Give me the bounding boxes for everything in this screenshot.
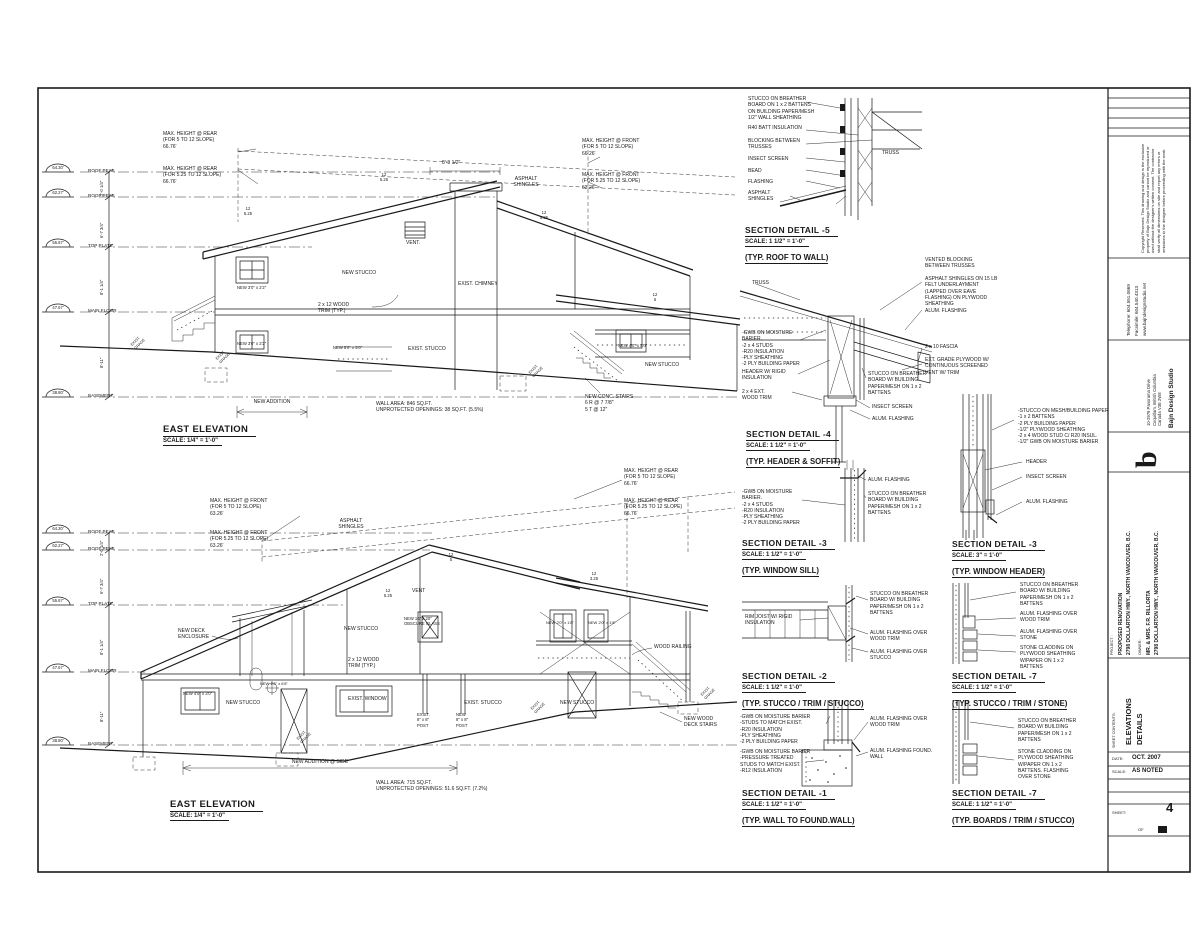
detail-scale-text: SCALE: 1 1/2" = 1'-0" [742,684,806,693]
detail-title-text: SECTION DETAIL -3 [952,539,1045,551]
detail-subtitle-text: (TYP. BOARDS / TRIM / STUCCO) [952,816,1074,827]
firm-name: Bajn Design Studio [1168,368,1175,428]
detail-subtitle-text: (TYP. WINDOW SILL) [742,566,819,577]
detail-scale-text: SCALE: 1 1/2" = 1'-0" [742,551,806,560]
fax-text: Facsimile: 604.540.4313 [1134,286,1139,336]
callout: STONE CLADDING ON PLYWOOD SHEATHING W/PA… [1018,749,1073,780]
detail-2-title: SECTION DETAIL -2 SCALE: 1 1/2" = 1'-0" … [742,666,864,711]
firm-address: 10-2979 Panorama Drive Coquitlam, Britis… [1146,356,1163,426]
sheet-contents-label: SHEET CONTENTS: [1112,712,1116,748]
detail-3-header-title: SECTION DETAIL -3 SCALE: 3" = 1'-0" (TYP… [952,534,1045,579]
detail-subtitle-text: (TYP. WALL TO FOUND.WALL) [742,816,855,827]
owner-text: MR. & MRS. F.R. RILLORTA 2798 DOLLARTON … [1146,483,1161,655]
sheet-total-block [1158,826,1167,833]
detail-scale-text: SCALE: 1 1/2" = 1'-0" [745,238,809,247]
date-value: OCT. 2007 [1132,755,1161,761]
elevation-2-title: EAST ELEVATION SCALE: 1/4" = 1'-0" [170,794,263,821]
elevation-title-text: EAST ELEVATION [163,424,256,437]
detail-subtitle-text: (TYP. ROOF TO WALL) [745,253,828,264]
detail-title-text: SECTION DETAIL -4 [746,429,839,441]
drawing-sheet: MAX. HEIGHT @ REAR (FOR 5 TO 12 SLOPE) 6… [0,0,1200,927]
detail-scale-text: SCALE: 1 1/2" = 1'-0" [952,801,1016,810]
detail-subtitle-text: (TYP. HEADER & SOFFIT) [746,457,840,468]
website-text: www.bajndesignstudio.net [1142,283,1147,336]
sheet-number: 4 [1166,800,1173,815]
callout: STUCCO ON BREATHER BOARD W/ BUILDING PAP… [1018,718,1076,743]
detail-subtitle-text: (TYP. WINDOW HEADER) [952,567,1045,578]
detail-title-text: SECTION DETAIL -7 [952,788,1045,800]
detail-1-title: SECTION DETAIL -1 SCALE: 1 1/2" = 1'-0" … [742,783,855,828]
firm-logo: b [1130,451,1164,468]
elevation-scale-text: SCALE: 1/4" = 1'-0" [170,812,229,821]
detail-title-text: SECTION DETAIL -7 [952,671,1045,683]
detail-7-stone-title: SECTION DETAIL -7 SCALE: 1 1/2" = 1'-0" … [952,666,1067,711]
project-label: PROJECT : [1110,635,1114,655]
detail-subtitle-text: (TYP. STUCCO / TRIM / STUCCO) [742,699,864,710]
detail-title-text: SECTION DETAIL -2 [742,671,835,683]
elevation-scale-text: SCALE: 1/4" = 1'-0" [163,437,222,446]
sheet-contents-text: ELEVATIONS DETAILS [1124,660,1145,745]
detail-7-boards-title: SECTION DETAIL -7 SCALE: 1 1/2" = 1'-0" … [952,783,1074,828]
detail-subtitle-text: (TYP. STUCCO / TRIM / STONE) [952,699,1067,710]
owner-label: OWNER: [1138,639,1142,655]
detail-3-sill-title: SECTION DETAIL -3 SCALE: 1 1/2" = 1'-0" … [742,533,835,578]
detail-title-text: SECTION DETAIL -3 [742,538,835,550]
elevation-1-title: EAST ELEVATION SCALE: 1/4" = 1'-0" [163,419,256,446]
date-label: DATE: [1112,756,1123,761]
sheet-of-label: OF [1138,827,1144,832]
scale-label: SCALE: [1112,769,1126,774]
detail-5-title: SECTION DETAIL -5 SCALE: 1 1/2" = 1'-0" … [745,220,838,265]
project-text: PROPOSED RENOVATION 2798 DOLLARTON HWY.,… [1118,483,1133,655]
elevation-title-text: EAST ELEVATION [170,799,263,812]
scale-value: AS NOTED [1132,768,1163,774]
detail-scale-text: SCALE: 1 1/2" = 1'-0" [742,801,806,810]
sheet-label: SHEET: [1112,810,1126,815]
detail-4-title: SECTION DETAIL -4 SCALE: 1 1/2" = 1'-0" … [746,424,840,469]
detail-scale-text: SCALE: 1 1/2" = 1'-0" [952,684,1016,693]
detail-title-text: SECTION DETAIL -5 [745,225,838,237]
detail-title-text: SECTION DETAIL -1 [742,788,835,800]
detail-scale-text: SCALE: 1 1/2" = 1'-0" [746,442,810,451]
detail-scale-text: SCALE: 3" = 1'-0" [952,552,1006,561]
copyright-note: Copyright Reserved. This drawing and des… [1140,141,1166,253]
phone-text: Telephone: 604.551.0669 [1126,284,1131,336]
